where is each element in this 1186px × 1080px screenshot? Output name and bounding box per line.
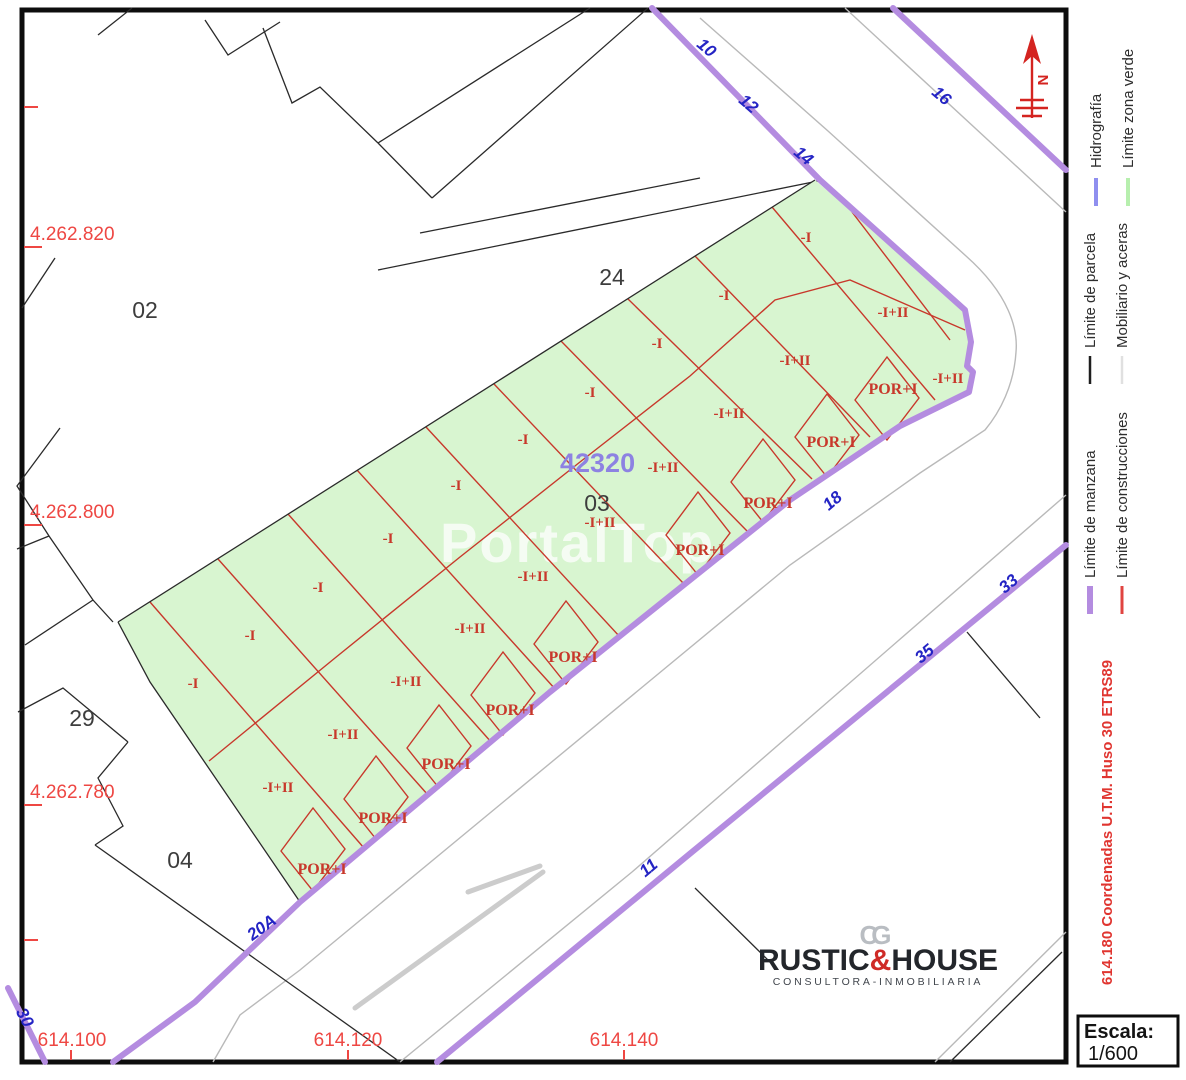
utm-coordinates-note: 614.180 Coordenadas U.T.M. Huso 30 ETRS8…	[1099, 660, 1116, 985]
porch-label: POR+I	[806, 434, 855, 451]
logo-title-left: RUSTIC	[758, 944, 870, 977]
legend-label-manzana: Límite de manzana	[1082, 450, 1099, 578]
parcel-type-label: -I	[313, 580, 324, 596]
block-number: 03	[584, 490, 610, 516]
utm-coordinate-label: 4.262.800	[30, 502, 115, 523]
parcel-type-label: -I	[801, 230, 812, 246]
north-label: N	[1034, 75, 1051, 86]
porch-label: POR+I	[868, 381, 917, 398]
legend-panel: Hidrografía Límite zona verde Límite de …	[1078, 10, 1178, 1012]
parcel-type-label: -I	[245, 628, 256, 644]
utm-coordinate-label: 4.262.780	[30, 782, 115, 803]
scale-panel: Escala: 1/600	[1078, 1016, 1178, 1066]
scale-label: Escala:	[1084, 1021, 1154, 1043]
parcel-type-label: -I	[383, 531, 394, 547]
parcel-type-label: -I+II	[517, 569, 548, 585]
zone-code: 42320	[560, 448, 635, 478]
parcel-type-label: -I	[585, 385, 596, 401]
porch-label: POR+I	[421, 756, 470, 773]
watermark: PortalTop	[440, 511, 715, 574]
cadastral-map: PortalTop	[0, 0, 1186, 1080]
parcel-type-label: -I	[652, 336, 663, 352]
parcel-type-label: -I+II	[779, 353, 810, 369]
utm-coordinate-label: 614.140	[590, 1030, 659, 1051]
legend-label-zona-verde: Límite zona verde	[1120, 49, 1137, 168]
parcel-type-label: -I+II	[327, 727, 358, 743]
utm-coordinate-label: 614.100	[38, 1030, 107, 1051]
parcel-type-label: -I+II	[390, 674, 421, 690]
legend-label-hidrografia: Hidrografía	[1088, 93, 1105, 168]
porch-label: POR+I	[358, 810, 407, 827]
block-number: 04	[167, 847, 193, 873]
porch-label: POR+I	[485, 702, 534, 719]
porch-label: POR+I	[675, 542, 724, 559]
parcel-type-label: -I+II	[713, 406, 744, 422]
utm-coordinate-label: 614.120	[314, 1030, 383, 1051]
legend-label-aceras: Mobiliario y aceras	[1114, 223, 1131, 348]
parcel-type-label: -I	[719, 288, 730, 304]
parcel-type-label: -I	[451, 478, 462, 494]
logo-title: RUSTIC&HOUSE	[758, 944, 998, 977]
logo-subtitle: CONSULTORA-INMOBILIARIA	[773, 976, 983, 988]
parcel-type-label: -I+II	[262, 780, 293, 796]
parcel-type-label: -I+II	[877, 305, 908, 321]
parcel-type-label: -I+II	[647, 460, 678, 476]
legend-label-construcciones: Límite de construcciones	[1114, 412, 1131, 578]
logo-title-right: HOUSE	[891, 944, 998, 977]
block-number: 24	[599, 264, 625, 290]
legend-label-parcela: Límite de parcela	[1082, 232, 1099, 348]
logo-ampersand: &	[870, 944, 892, 977]
block-number: 02	[132, 297, 158, 323]
scale-value: 1/600	[1088, 1043, 1138, 1065]
parcel-type-label: -I+II	[454, 621, 485, 637]
parcel-type-label: -I+II	[584, 515, 615, 531]
block-number: 29	[69, 705, 95, 731]
cadastral-map-page: PortalTop	[0, 0, 1186, 1080]
utm-coordinate-label: 4.262.820	[30, 224, 115, 245]
parcel-type-label: -I	[518, 432, 529, 448]
parcel-type-label: -I+II	[932, 371, 963, 387]
parcel-type-label: -I	[188, 676, 199, 692]
porch-label: POR+I	[743, 495, 792, 512]
porch-label: POR+I	[297, 861, 346, 878]
porch-label: POR+I	[548, 649, 597, 666]
